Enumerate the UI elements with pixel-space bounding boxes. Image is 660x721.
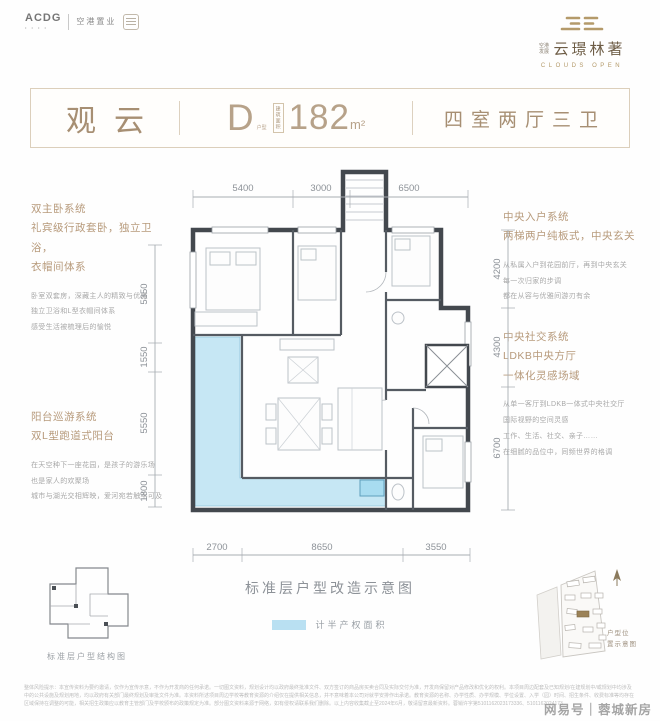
sink	[392, 312, 404, 324]
dimension-label: 8650	[311, 542, 332, 553]
dimension-label: 2700	[206, 542, 227, 553]
dimension-label: 4200	[492, 258, 503, 279]
dimension-label: 3550	[425, 542, 446, 553]
watermark: 网易号｜蓉城新房	[544, 699, 652, 718]
floor-plan-area: 5400 3000 6500 5350 1550 5550 1800 4200 …	[130, 160, 520, 570]
feature-title-line: 中央入户系统	[503, 208, 653, 227]
acdg-logo: ACDG • • • •	[25, 13, 61, 30]
brand-logo-group: 空港 发展 云璟林著 CLOUDS OPEN	[522, 15, 642, 69]
feature-body-line: 国际视野的空间灵感	[503, 413, 653, 429]
dimension-label: 5400	[232, 183, 253, 194]
dimension-label: 1550	[139, 346, 150, 367]
floor-plan: 5400 3000 6500 5350 1550 5550 1800 4200 …	[130, 160, 520, 570]
dimension-label: 3000	[310, 183, 331, 194]
developer-logo-group: ACDG • • • • 空港置业	[25, 13, 139, 30]
brand-prefix: 空港 发展	[538, 43, 549, 55]
acdg-logo-text: ACDG	[25, 13, 61, 24]
room-layout-label: 四室两厅三卫	[444, 110, 606, 131]
highlighted-building	[577, 611, 589, 617]
partner-logo-icon	[123, 14, 139, 30]
area-value: 182	[289, 98, 350, 138]
legend-swatch	[272, 620, 306, 630]
wardrobe	[195, 312, 257, 326]
balcony-planter	[360, 480, 384, 496]
toilet	[392, 484, 404, 500]
feature-body-line: 从私属入户到花园前厅，再到中央玄关	[503, 258, 653, 274]
feature-body-line: 每一次归家的步调	[503, 274, 653, 290]
area-label: 建筑面积	[273, 103, 284, 133]
kitchen-counter	[280, 339, 334, 350]
dimension-label: 1800	[139, 480, 150, 501]
floorplan-poster: ACDG • • • • 空港置业 空港 发展 云璟林著 CLOUDS OPEN…	[0, 0, 660, 721]
acdg-logo-subtext: • • • •	[25, 26, 61, 30]
feature-title-line: LDKB中央方厅	[503, 347, 653, 366]
legend-label: 计半产权面积	[315, 618, 387, 631]
feature-central-social: 中央社交系统 LDKB中央方厅 一体化灵感场域 从单一客厅到LDKB一体式中央社…	[503, 328, 653, 460]
dimension-label: 6700	[492, 437, 503, 458]
feature-body-line: 在细腻的品位中，同频世界的格调	[503, 445, 653, 461]
cloud-emblem-icon	[560, 15, 604, 34]
feature-body-line: 工作、生活、社交、亲子……	[503, 429, 653, 445]
structure-caption: 标准层户型结构图	[28, 651, 146, 662]
north-arrow-icon	[610, 567, 624, 587]
sofa	[338, 388, 382, 450]
unit-name: 观云	[66, 105, 162, 138]
elevator-shaft	[426, 345, 468, 387]
dimension-label: 4300	[492, 336, 503, 357]
structure-diagram: 标准层户型结构图	[28, 556, 146, 662]
disclaimer-line: 整体风险提示：本宣传资料为要约邀请，仅作为宣传示意，不作为开发商的任何承诺。一切…	[24, 684, 638, 692]
site-caption: 户型位 置示意图	[607, 628, 637, 650]
unit-type-label: 户型	[257, 124, 267, 131]
feature-body-line: 都在从容与优雅间游刃有余	[503, 289, 653, 305]
dimension-label: 6500	[398, 183, 419, 194]
feature-title-line: 中央社交系统	[503, 328, 653, 347]
logo-divider	[68, 14, 69, 30]
feature-title-line: 一体化灵感场域	[503, 367, 653, 386]
header-band: 观云 D 户型 建筑面积 182 m² 四室两厅三卫	[30, 88, 630, 148]
structure-plan-drawing	[32, 556, 142, 644]
area-unit: m²	[350, 117, 365, 132]
entry-stairs	[346, 180, 383, 220]
company-name: 空港置业	[76, 16, 116, 27]
dimension-label: 5550	[139, 412, 150, 433]
unit-type-letter: D	[227, 97, 254, 139]
feature-central-entry: 中央入户系统 两梯两户纯板式，中央玄关 从私属入户到花园前厅，再到中央玄关 每一…	[503, 208, 653, 305]
feature-title-line: 两梯两户纯板式，中央玄关	[503, 227, 653, 246]
brand-name: 云璟林著	[553, 38, 625, 59]
brand-name-en: CLOUDS OPEN	[522, 63, 642, 69]
dimension-label: 5350	[139, 283, 150, 304]
feature-body-line: 从单一客厅到LDKB一体式中央社交厅	[503, 397, 653, 413]
